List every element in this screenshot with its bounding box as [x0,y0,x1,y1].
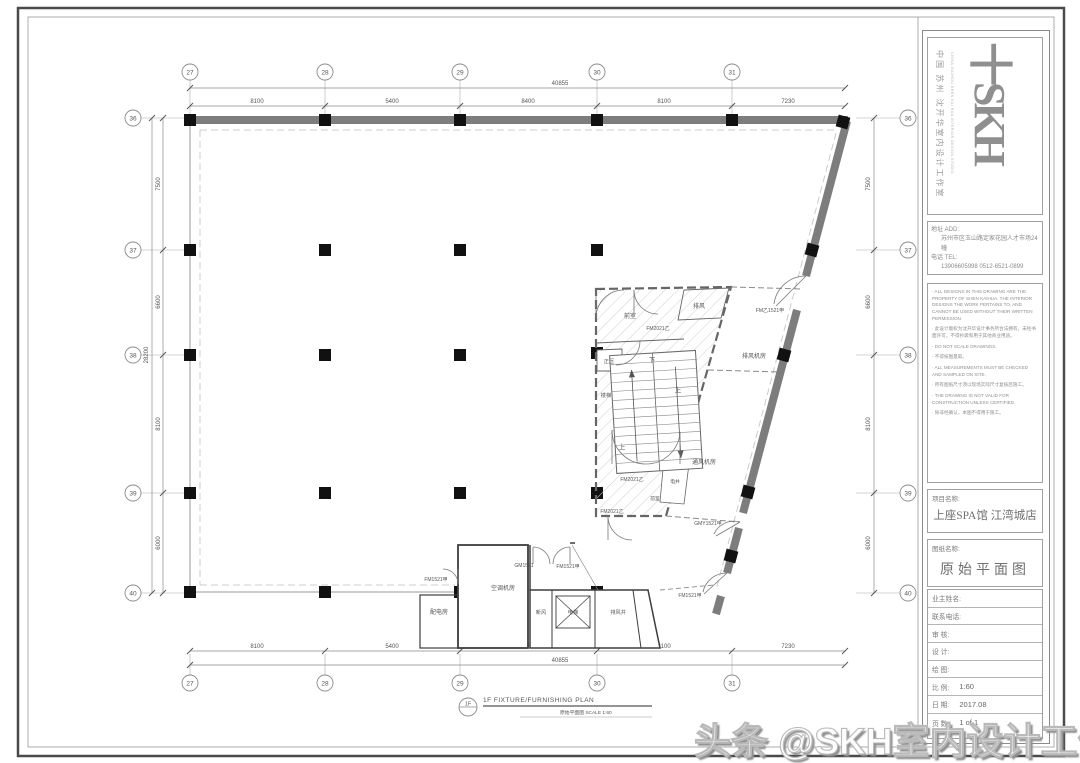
grid-col-bubble: 28 [321,70,329,77]
field-row: 联系电话: [928,608,1042,626]
field-label: 业主姓名: [932,593,961,603]
door-label: FM2021乙 [620,476,643,483]
caption-bubble: 1F [465,702,472,708]
grid-row-bubble: 39 [904,491,912,498]
grid-bubbles-bottom: 27 28 29 30 31 [182,654,740,691]
grid-col-bubble: 31 [728,681,736,688]
floor-edge-dashed [200,130,836,590]
room-label: 前室 [624,312,636,320]
grid-col-bubble: 29 [456,681,464,688]
grid-row-bubble: 39 [129,491,137,498]
door-label: FM2021乙 [646,325,669,332]
field-row: 比 例: 1:60 [928,678,1042,696]
door-label: FM1521甲 [678,593,701,599]
drawing-name: 原始平面图 [928,559,1042,579]
svg-text:7500: 7500 [156,177,162,191]
svg-text:8100: 8100 [156,417,162,431]
dim-total-bottom: 40855 [552,658,569,664]
grid-row-bubble: 36 [904,116,912,123]
grid-bubbles-right: 36 37 38 39 40 [856,110,916,601]
door-label: GM1521 [514,563,533,569]
grid-col-bubble: 28 [321,681,329,688]
note-line: · ALL DESIGNS IN THIS DRAWING ARE THE PR… [932,289,1038,322]
field-value: 2017.08 [959,700,986,709]
door-label: FM乙1521甲 [756,307,784,314]
room-label: 楼梯 [601,391,611,399]
slant-wall [716,121,847,614]
room-label: 正压 [604,358,614,365]
grid-row-bubble: 37 [129,248,137,255]
address-label: 地址 ADD: [931,226,1039,235]
door-label: GMY1521甲 [694,521,722,527]
dim-total-top: 40855 [552,81,569,87]
project-name-box: 项目名称: 上座SPA馆 江湾城店 [927,489,1043,533]
caption-title: 1F FIXTURE/FURNISHING PLAN [483,697,594,704]
grid-row-bubble: 40 [129,591,137,598]
skh-logo: 十SKH [962,42,1026,210]
stair-flights [610,350,703,473]
note-line: · 所有图纸尺寸须以现场实际尺寸复核后施工。 [932,382,1038,389]
svg-text:6000: 6000 [156,536,162,550]
drawing-sheet: 27 28 29 30 31 27 28 29 30 31 36 37 [0,0,1080,763]
dimension-top: 40855 8100 5400 8400 8100 7230 [187,81,848,109]
svg-text:7230: 7230 [781,644,795,650]
room-label: 空调机房 [491,584,515,592]
drawing-name-box: 图纸名称: 原始平面图 [927,539,1043,587]
grid-bubbles-top: 27 28 29 30 31 [182,64,740,116]
svg-text:8100: 8100 [866,417,872,431]
svg-text:8400: 8400 [521,99,535,105]
room-label: 电梯 [568,608,578,616]
floor-plan-svg: 27 28 29 30 31 27 28 29 30 31 36 37 [0,0,1080,763]
title-block: 中国 苏州 沈开华室内设计工作室 CHINA SUZHOU SHEN KAI H… [922,30,1050,744]
room-label: 新风 [536,608,547,616]
grid-row-bubble: 37 [904,248,912,255]
dim-total-left: 28200 [144,346,150,363]
note-line: · 此设计版权为沈开华设计事务所合法拥有，未经书面许可，不得抄袭和用于其他商业用… [932,326,1038,339]
address-value: 苏州市区玉山路定家花园人才市场24幢 [931,235,1039,254]
note-line: · THE DRAWING IS NOT VALID FOR CONSTRUCT… [932,393,1038,406]
room-label: 电井 [670,478,680,485]
svg-text:6600: 6600 [156,295,162,309]
svg-text:6600: 6600 [866,295,872,309]
watermark: 头条 @SKH室内设计工作室 [694,711,1080,763]
svg-text:8100: 8100 [250,99,264,105]
field-label: 日 期: [932,699,949,709]
grid-col-bubble: 27 [186,681,194,688]
note-line: · DO NOT SCALE DRAWINGS. [932,344,1038,351]
field-label: 审 核: [932,629,949,639]
field-row: 设 计: [928,643,1042,661]
room-label: 通风机房 [692,458,716,466]
door-label: FM1521甲 [424,577,447,583]
svg-text:5400: 5400 [385,644,399,650]
note-line: · 不得按图量取。 [932,354,1038,361]
stair-core [596,287,731,540]
svg-text:8100: 8100 [657,99,671,105]
top-wall [188,116,848,124]
field-label: 绘 图: [932,664,949,674]
tel-label: 电话 TEL: [931,254,1039,263]
grid-row-bubble: 38 [904,353,912,360]
room-label: 前室 [650,495,660,502]
field-row: 业主姓名: [928,590,1042,608]
notes-box: · ALL DESIGNS IN THIS DRAWING ARE THE PR… [927,283,1043,483]
svg-text:7230: 7230 [781,99,795,105]
svg-text:8100: 8100 [250,644,264,650]
stair-down-label: 下 [649,356,656,364]
grid-col-bubble: 31 [728,70,736,77]
svg-text:5400: 5400 [385,99,399,105]
plan-caption: 1F 1F FIXTURE/FURNISHING PLAN 原始平面图 SCAL… [459,697,652,717]
grid-row-bubble: 38 [129,353,137,360]
field-row: 绘 图: [928,661,1042,679]
door-label: FM2021乙 [600,508,623,515]
field-label: 比 例: [932,682,949,692]
dimension-left: 7500 6600 8100 6000 28200 [144,115,166,596]
grid-col-bubble: 29 [456,70,464,77]
drawing-label: 图纸名称: [928,540,1042,553]
stair-up-label: 上 [619,442,626,451]
logo-english-text: CHINA SUZHOU SHEN KAI HUA INTERIOR DESIG… [950,52,954,204]
door-label: FM1521甲 [556,564,579,570]
note-line: · ALL MEASUREMENTS MUST BE CHECKED AND S… [932,365,1038,378]
field-label: 联系电话: [932,611,961,621]
grid-col-bubble: 27 [186,70,194,77]
logo-chinese-text: 中国 苏州 沈开华室内设计工作室 [934,50,945,206]
room-label: 排风 [693,302,705,310]
stair-up-label: 上 [675,385,682,394]
grid-row-bubble: 40 [904,591,912,598]
exterior-walls [188,116,848,614]
project-name: 上座SPA馆 江湾城店 [928,507,1042,523]
field-value: 1:60 [959,682,974,691]
address-box: 地址 ADD: 苏州市区玉山路定家花园人才市场24幢 电话 TEL: 13906… [927,221,1043,275]
logo-box: 中国 苏州 沈开华室内设计工作室 CHINA SUZHOU SHEN KAI H… [927,37,1043,215]
tel-value: 13906605998 0512-6521-0899 [931,263,1039,272]
field-label: 设 计: [932,646,949,656]
room-label: 排风机房 [742,352,766,360]
grid-row-bubble: 36 [129,116,137,123]
grid-col-bubble: 30 [593,681,601,688]
svg-text:6000: 6000 [866,536,872,550]
svg-text:7500: 7500 [866,177,872,191]
room-label: 排风井 [610,608,626,616]
field-row: 审 核: [928,625,1042,643]
grid-col-bubble: 30 [593,70,601,77]
room-label: 配电房 [430,608,448,616]
project-label: 项目名称: [928,490,1042,503]
caption-subtitle: 原始平面图 SCALE 1:60 [560,709,612,716]
dimension-right: 7500 6600 8100 6000 [866,115,877,596]
note-line: · 除非经确认，本图不得用于施工。 [932,410,1038,417]
bottom-rooms [420,543,714,648]
